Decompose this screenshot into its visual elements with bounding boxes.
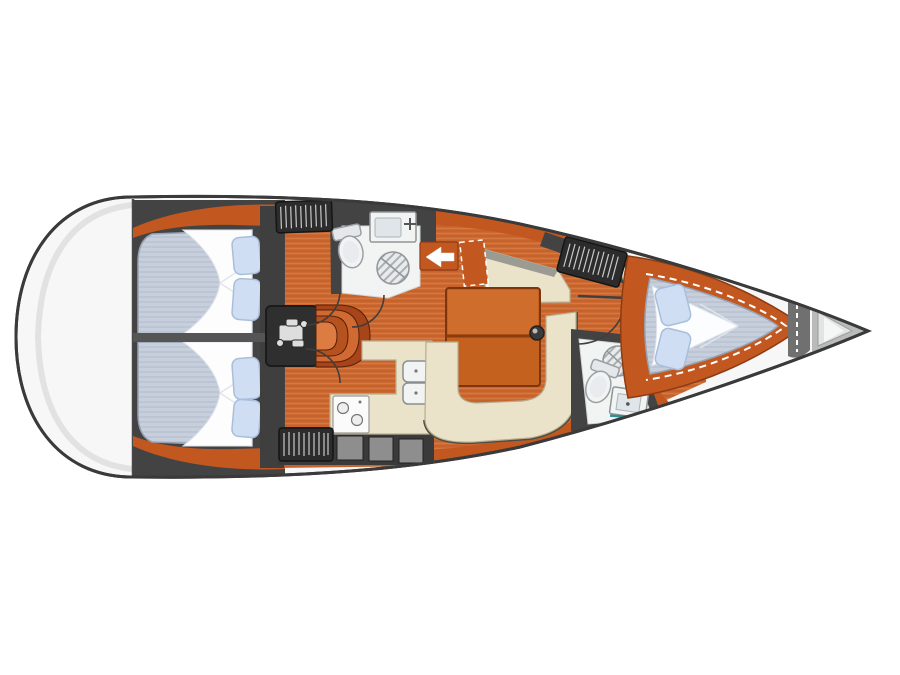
saloon-table [446,288,540,386]
companionway-step-4 [316,322,337,350]
aft-berth-starboard-pillow-2 [231,399,261,438]
aft-cabin-starboard: Aft double cabin (starboard) [133,340,285,476]
boat-layout-diagram: Stern deck Aft double cabin (port) Aft d… [0,0,900,675]
galley-locker-2 [369,437,393,461]
dashed-panel [460,240,488,286]
mast-post [530,326,544,340]
deck-hatch-galley [279,428,333,461]
companionway-entry-panel [420,242,458,270]
boat-floorplan-svg: Stern deck Aft double cabin (port) Aft d… [0,0,900,675]
aft-cabin-port: Aft double cabin (port) [133,200,285,336]
deck-hatch-aft [275,200,332,233]
galley-locker-1 [337,436,363,460]
engine-room: Engine compartment [266,306,318,366]
aft-cabins-divider [133,333,285,342]
aft-berth-port-pillow-1 [231,236,261,275]
galley-locker-3 [399,439,423,463]
interior: Aft double cabin (port) Aft double cabin… [133,200,864,476]
aft-head-sink [370,212,416,242]
aft-berth-port-pillow-2 [232,278,262,321]
galley-stove [333,396,369,433]
aft-head-shower [377,252,409,284]
aft-berth-starboard-pillow-1 [232,357,262,400]
